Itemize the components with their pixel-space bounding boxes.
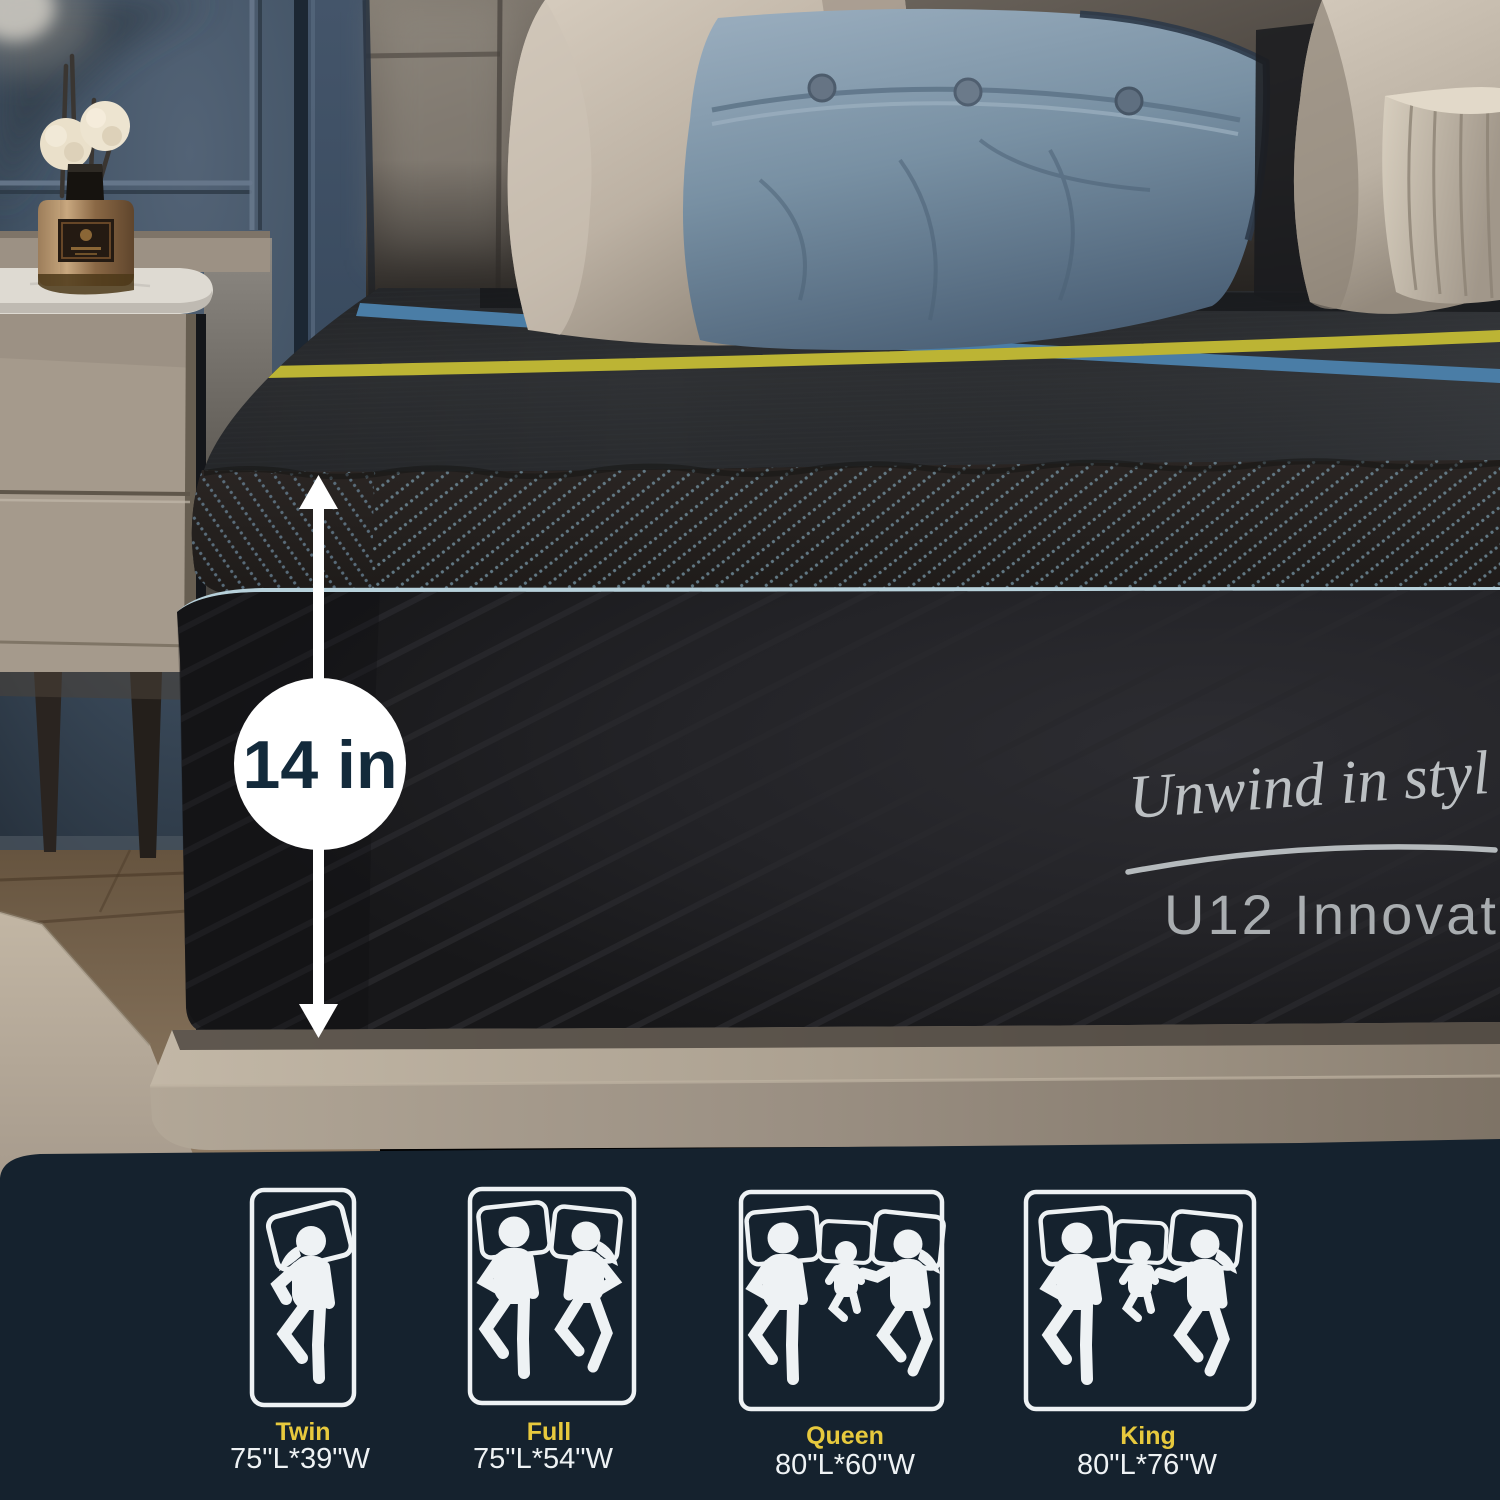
svg-text:King: King [1120, 1422, 1176, 1450]
svg-text:80"L*60"W: 80"L*60"W [775, 1449, 916, 1481]
svg-text:14 in: 14 in [243, 727, 398, 803]
svg-text:Full: Full [527, 1418, 571, 1446]
svg-text:75"L*54"W: 75"L*54"W [473, 1443, 614, 1475]
svg-text:75"L*39"W: 75"L*39"W [230, 1443, 371, 1475]
svg-text:Twin: Twin [275, 1418, 330, 1446]
svg-text:Queen: Queen [806, 1422, 884, 1450]
svg-text:U12 Innovative: U12 Innovative [1164, 883, 1500, 946]
svg-text:80"L*76"W: 80"L*76"W [1077, 1449, 1218, 1481]
